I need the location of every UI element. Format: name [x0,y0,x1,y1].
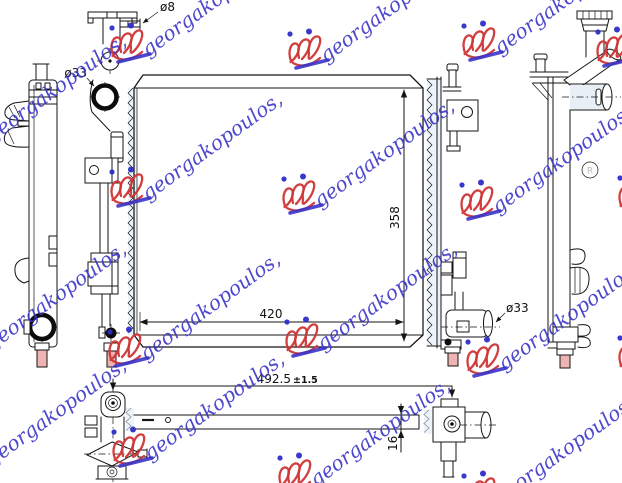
watermark: georgakopoulos, [109,0,286,62]
watermark-text: georgakopoulos, [305,373,455,483]
logo-underline [118,54,150,62]
label-outlet-dia-right: ø33 [506,301,529,315]
watermark-text: georgakopoulos, [315,0,465,67]
watermark-layer: georgakopoulos,georgakopoulos,georgakopo… [0,0,622,483]
dim-core-width: 420 [260,307,283,321]
drain-plug [37,350,47,367]
top-mount-bracket [88,12,137,18]
drawing-canvas: 420 358 ø8 ø33 ø33 [0,0,622,483]
dim-overall-width-tol: ±1.5 [293,375,318,386]
brand-logo-icon [617,333,622,370]
outlet-elbow [446,310,488,337]
logo-underline [474,368,506,376]
brand-logo-icon [617,173,622,210]
watermark: georgakopoulos, [287,0,464,68]
watermark-text: georgakopoulos, [139,347,289,465]
wing-bolt [578,325,590,348]
watermark: georgakopoulos, [459,100,622,219]
logo-underline [293,348,325,356]
lower-clip [15,258,29,283]
drain-plug-right [560,355,570,368]
dim-core-height: 358 [388,206,402,229]
label-inlet-dia-top: ø8 [160,0,175,14]
brand-logo-icon [277,453,310,483]
inlet-port [94,86,117,109]
watermark-text: georgakopoulos, [489,391,622,483]
drain-plug-front-right [448,353,458,366]
watermark: georgakopoulos, [111,347,288,466]
logo-underline [290,205,322,213]
watermark-text: georgakopoulos, [493,257,622,375]
registered-mark: R [587,167,593,177]
watermark-text: georgakopoulos, [487,100,622,218]
watermark-text: georgakopoulos, [137,87,287,205]
brand-logo-icon [461,471,494,483]
logo-underline [296,60,328,68]
logo-underline [468,211,500,219]
logo-underline [470,52,502,60]
radiator-technical-drawing: 420 358 ø8 ø33 ø33 [0,0,622,483]
